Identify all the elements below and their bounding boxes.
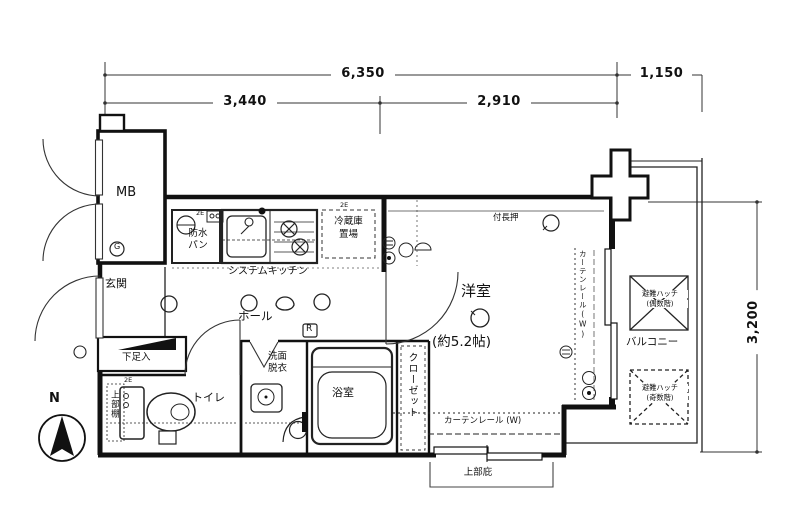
picture-rail-label: 付長押 [493,214,519,223]
floor-plan: 6,350 3,440 2,910 1,150 3,200 N MB G 玄関 … [0,0,800,520]
hatch-odd-label-line1: 避難ハッチ [632,384,688,392]
dim-height: 3,200 [747,290,761,354]
compass-north-label: N [49,392,60,406]
kitchen-counter-symbol [222,208,317,264]
hatch-even-label-line2: (偶数階) [632,300,688,308]
room-label-bathroom: 浴室 [331,387,355,399]
refrigerator-label-line2: 置場 [322,230,375,240]
dim-balcony-width: 1,150 [631,67,692,81]
room-label-shoe-cabinet: 下足入 [122,353,151,363]
refrigerator-outlet-label: 2E [340,202,348,209]
dim-total-width: 6,350 [331,67,395,81]
dim-left-width: 3,440 [213,95,277,109]
hatch-even-label-line1: 避難ハッチ [632,290,688,298]
room-label-hall: ホール [238,310,273,323]
hatch-odd-label-line2: (奇数階) [632,394,688,402]
dim-right-width: 2,910 [467,95,531,109]
room-label-washroom-line2: 脱衣 [268,364,287,374]
toilet-outlet-label: 2E [124,377,132,384]
outlet-symbols [383,237,431,264]
compass [39,415,85,461]
outer-walls [98,115,616,455]
laundry-pan-label-line1: 防水 [178,229,218,239]
room-label-closet: クローゼット [406,352,417,418]
refrigerator-label-line1: 冷蔵庫 [322,217,375,227]
room-label-toilet: トイレ [192,392,225,404]
room-label-entrance: 玄関 [105,278,127,290]
room-label-meter-box: MB [116,186,136,200]
room-label-balcony: バルコニー [626,337,678,349]
room-label-washroom-line1: 洗面 [268,352,287,362]
washstand-symbol [245,384,308,442]
sliding-window-south [434,445,542,462]
toilet-upper-shelf-label: 上部棚 [109,390,118,419]
gas-meter-label: G [114,243,120,252]
canopy-label: 上部庇 [448,468,508,478]
room-label-western-room: 洋室 [461,283,491,300]
curtain-rail-south-label: カーテンレール (W) [443,417,522,426]
western-room-size-label: (約5.2帖) [432,335,491,350]
sliding-window-east [605,249,617,399]
curtain-rail-east-label: カーテンレール(W) [577,250,587,340]
room-label-kitchen: システムキッチン [228,266,308,277]
laundry-outlet-label: 2E [196,210,204,217]
western-room-symbols [172,200,604,434]
laundry-pan-label-line2: パン [178,241,218,251]
hall-riser-label: R [306,325,312,335]
